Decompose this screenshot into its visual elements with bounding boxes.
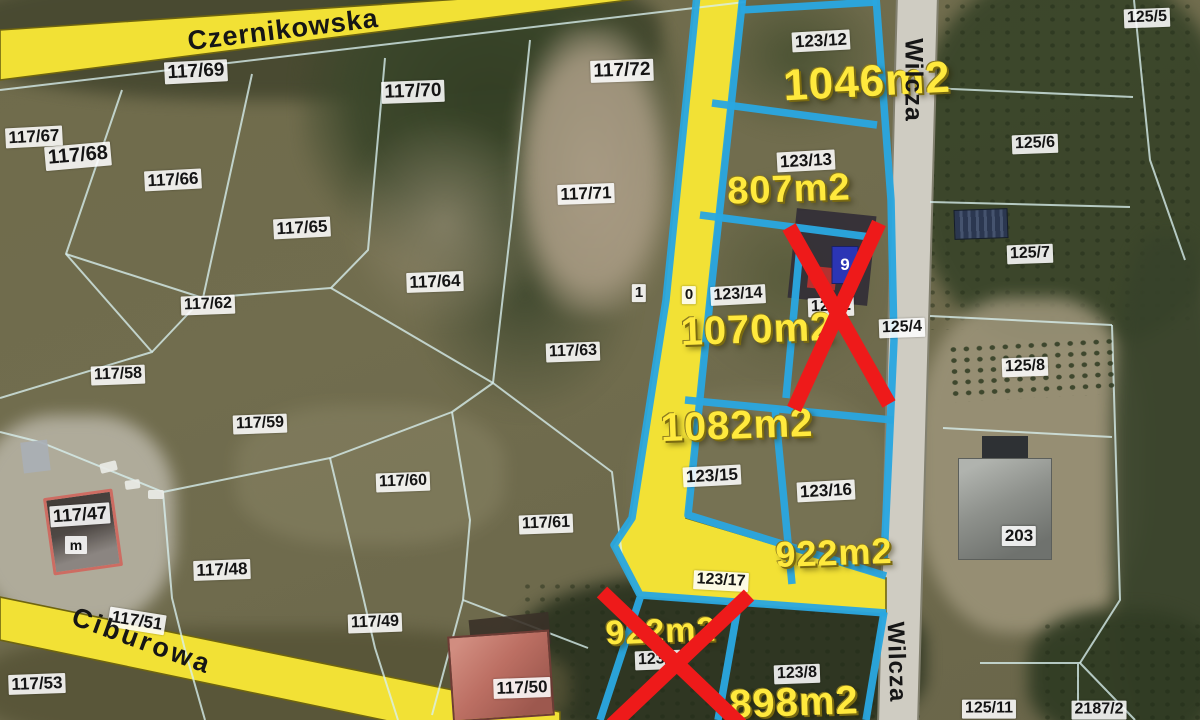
parcel-label-117-65: 117/65 (273, 216, 331, 239)
parcel-label-117-67: 117/67 (5, 125, 63, 148)
parcel-label-117-48: 117/48 (193, 559, 251, 581)
map-labels: 117/68117/69117/70117/72117/67117/66117/… (0, 0, 1200, 720)
parcel-label-117-64: 117/64 (406, 271, 464, 293)
parcel-label-117-63: 117/63 (546, 342, 601, 363)
parcel-label-2187-2: 2187/2 (1072, 701, 1127, 720)
parcel-label-117-70: 117/70 (381, 80, 445, 105)
map-canvas[interactable]: 117/68117/69117/70117/72117/67117/66117/… (0, 0, 1200, 720)
parcel-label-117-69: 117/69 (164, 59, 228, 85)
parcel-label-117-59: 117/59 (233, 414, 288, 435)
street-label-wilcza: Wilcza (881, 621, 912, 702)
parcel-label-117-66: 117/66 (144, 168, 202, 191)
street-label-wilcza: Wilcza (899, 38, 928, 122)
parcel-label-117-62: 117/62 (181, 295, 236, 316)
parcel-label-125-6: 125/6 (1012, 134, 1059, 154)
parcel-label-123-14: 123/14 (710, 284, 766, 306)
parcel-label-117-50: 117/50 (493, 677, 551, 699)
area-label-922m2: 922m2 (775, 530, 894, 576)
parcel-label-117-72: 117/72 (590, 59, 654, 84)
parcel-label-203: 203 (1002, 526, 1036, 546)
area-label-807m2: 807m2 (727, 166, 852, 213)
parcel-label-125-8: 125/8 (1002, 357, 1049, 377)
house-number-badge: 9 (832, 246, 859, 284)
parcel-label-117-71: 117/71 (557, 183, 615, 205)
parcel-label-117-49: 117/49 (348, 613, 403, 634)
parcel-label-117-61: 117/61 (519, 514, 574, 535)
street-label-czernikowska: Czernikowska (186, 3, 380, 57)
parcel-label-117-47: 117/47 (49, 502, 110, 527)
parcel-label-123-15: 123/15 (683, 464, 742, 487)
area-label-1070m2: 1070m2 (680, 305, 834, 355)
area-label-922m2: 922m2 (605, 611, 717, 654)
parcel-label-123-17: 123/17 (693, 570, 749, 592)
parcel-label-123-9: 123/9 (635, 650, 682, 670)
parcel-label-125-5: 125/5 (1124, 8, 1171, 28)
parcel-label-0: 0 (682, 286, 696, 304)
parcel-label-123-16: 123/16 (797, 479, 856, 502)
parcel-label-125-11: 125/11 (962, 700, 1016, 719)
parcel-label-125-4: 125/4 (879, 318, 926, 338)
building-letter-badge: m (65, 536, 87, 554)
area-label-898m2: 898m2 (728, 678, 859, 720)
parcel-label-123-12: 123/12 (792, 29, 851, 52)
parcel-label-117-53: 117/53 (8, 673, 66, 695)
parcel-label-125-7: 125/7 (1007, 244, 1054, 264)
parcel-label-1: 1 (632, 284, 646, 302)
parcel-label-117-58: 117/58 (91, 365, 146, 386)
parcel-label-117-60: 117/60 (376, 472, 431, 493)
area-label-1082m2: 1082m2 (660, 401, 814, 451)
